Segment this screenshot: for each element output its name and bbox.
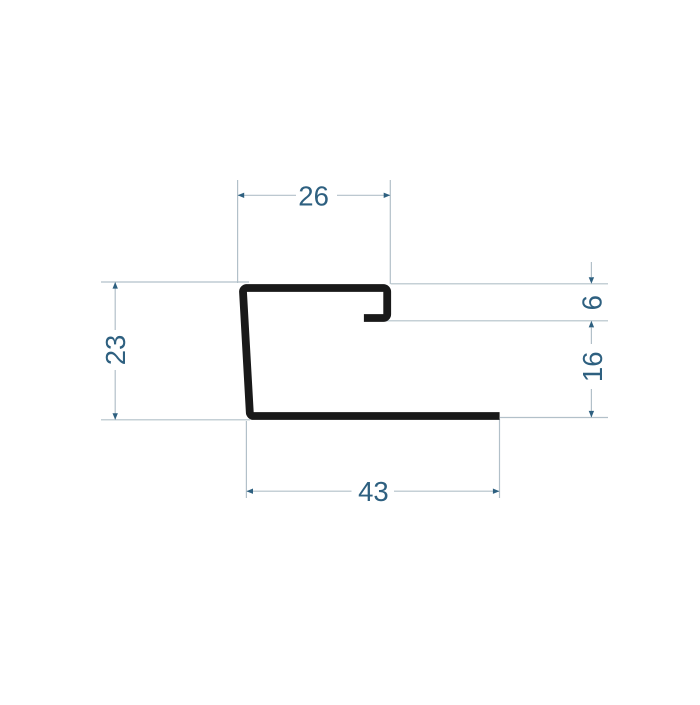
- svg-text:23: 23: [100, 335, 131, 366]
- svg-text:16: 16: [577, 352, 608, 383]
- svg-text:6: 6: [576, 295, 607, 310]
- svg-text:26: 26: [298, 181, 329, 212]
- svg-text:43: 43: [358, 476, 389, 507]
